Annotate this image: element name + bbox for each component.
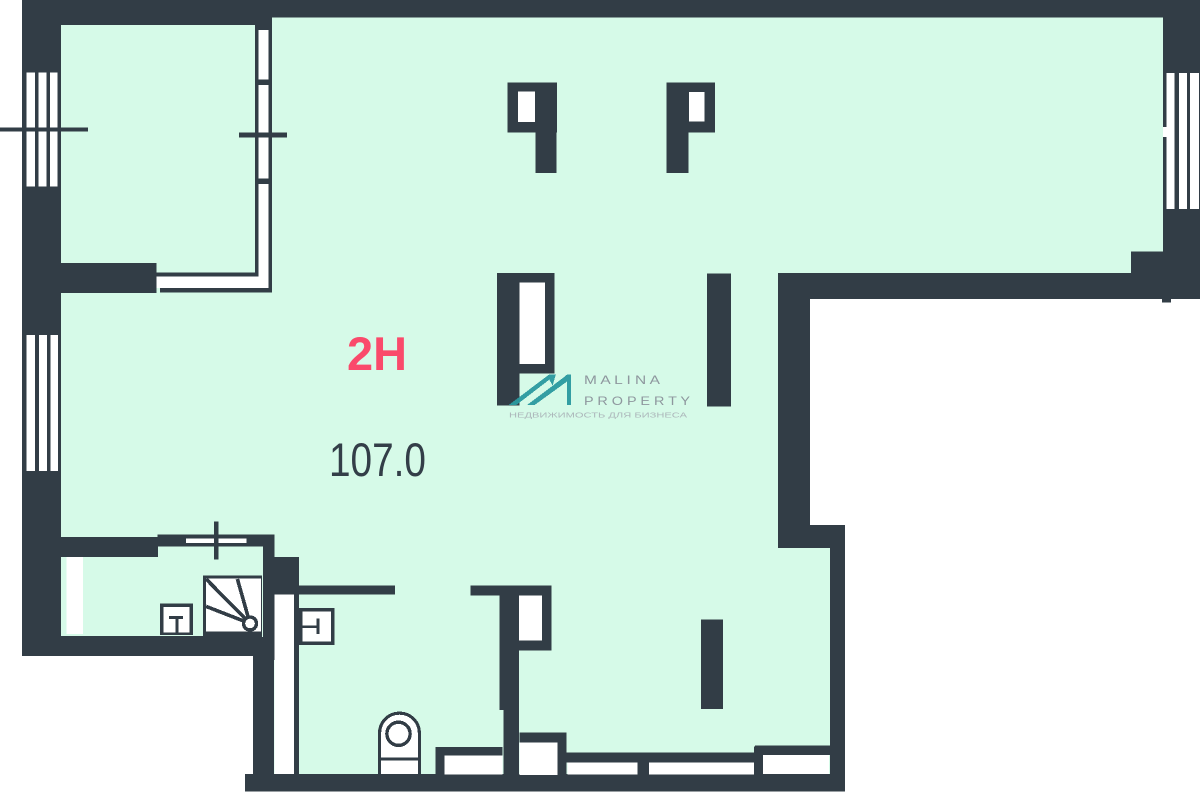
svg-text:107.0: 107.0 xyxy=(329,433,426,486)
svg-text:P R O P E R T Y: P R O P E R T Y xyxy=(584,396,690,408)
svg-text:M A L I N A: M A L I N A xyxy=(584,375,660,387)
svg-text:НЕДВИЖИМОСТЬ ДЛЯ БИЗНЕСА: НЕДВИЖИМОСТЬ ДЛЯ БИЗНЕСА xyxy=(509,411,687,420)
svg-text:2Н: 2Н xyxy=(347,327,407,380)
